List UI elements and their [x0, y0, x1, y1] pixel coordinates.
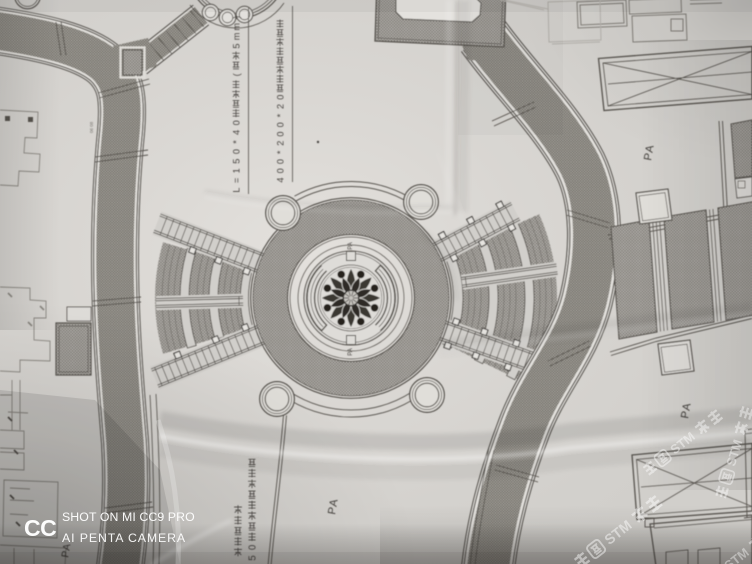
svg-text:0: 0: [275, 168, 285, 173]
svg-text:(: (: [231, 73, 241, 76]
svg-text:L: L: [231, 187, 241, 192]
svg-text:*: *: [275, 150, 285, 154]
svg-text:*: *: [231, 140, 241, 144]
svg-text:4: 4: [275, 177, 285, 182]
svg-text:CC: CC: [24, 515, 56, 541]
svg-text:): ): [231, 16, 241, 19]
svg-text:*: *: [275, 113, 285, 117]
svg-text:06 08: 06 08: [89, 121, 94, 133]
svg-text:0: 0: [231, 120, 241, 125]
svg-text:0: 0: [275, 159, 285, 164]
svg-text:SHOT ON MI CC9 PRO: SHOT ON MI CC9 PRO: [62, 510, 195, 524]
svg-text:2: 2: [275, 141, 285, 146]
svg-text:0: 0: [275, 95, 285, 100]
svg-text:4: 4: [231, 130, 241, 135]
svg-text:0: 0: [275, 131, 285, 136]
svg-text:m: m: [231, 23, 241, 31]
svg-text:5: 5: [231, 159, 241, 164]
svg-text:=: =: [231, 178, 241, 183]
svg-text:0: 0: [231, 149, 241, 154]
svg-text:1: 1: [231, 168, 241, 173]
svg-text:5: 5: [231, 43, 241, 48]
svg-text:0: 0: [275, 122, 285, 127]
svg-text:2: 2: [275, 104, 285, 109]
svg-text:m: m: [231, 32, 241, 40]
svg-text:AI PENTA CAMERA: AI PENTA CAMERA: [62, 531, 186, 545]
